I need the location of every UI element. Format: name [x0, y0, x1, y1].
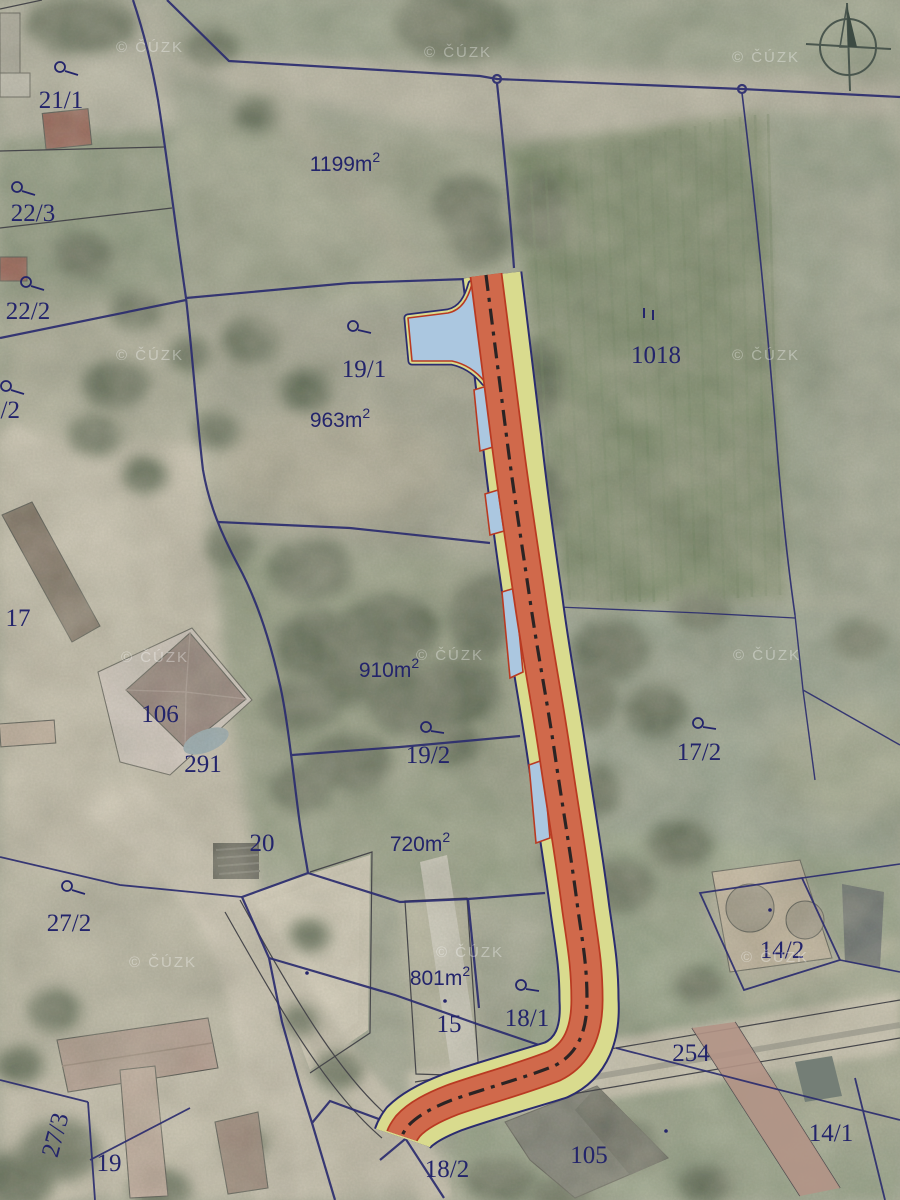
- svg-text:22/2: 22/2: [6, 298, 50, 325]
- svg-text:© ČÚZK: © ČÚZK: [733, 647, 801, 664]
- svg-text:© ČÚZK: © ČÚZK: [424, 44, 492, 61]
- svg-text:910m2: 910m2: [359, 655, 420, 682]
- svg-text:21/1: 21/1: [39, 87, 83, 114]
- svg-text:19/2: 19/2: [406, 742, 450, 769]
- svg-text:© ČÚZK: © ČÚZK: [116, 39, 184, 56]
- svg-text:17/2: 17/2: [677, 739, 721, 766]
- svg-text:15: 15: [437, 1011, 462, 1038]
- svg-text:© ČÚZK: © ČÚZK: [741, 949, 809, 966]
- svg-text:801m2: 801m2: [410, 963, 471, 990]
- svg-text:19/1: 19/1: [342, 356, 386, 383]
- svg-text:106: 106: [141, 701, 179, 728]
- svg-text:© ČÚZK: © ČÚZK: [121, 649, 189, 666]
- svg-text:18/2: 18/2: [425, 1156, 469, 1183]
- svg-text:3/2: 3/2: [0, 397, 20, 424]
- svg-text:254: 254: [672, 1040, 710, 1067]
- svg-text:© ČÚZK: © ČÚZK: [416, 647, 484, 664]
- svg-text:20: 20: [250, 830, 275, 857]
- svg-text:1199m2: 1199m2: [310, 149, 381, 176]
- svg-text:1018: 1018: [631, 342, 681, 369]
- svg-text:© ČÚZK: © ČÚZK: [436, 944, 504, 961]
- svg-text:14/1: 14/1: [809, 1120, 853, 1147]
- svg-text:963m2: 963m2: [310, 405, 371, 432]
- svg-text:720m2: 720m2: [390, 829, 451, 856]
- svg-text:22/3: 22/3: [11, 200, 55, 227]
- svg-text:© ČÚZK: © ČÚZK: [732, 347, 800, 364]
- svg-text:105: 105: [570, 1142, 608, 1169]
- svg-text:27/2: 27/2: [47, 910, 91, 937]
- svg-text:© ČÚZK: © ČÚZK: [129, 954, 197, 971]
- svg-text:18/1: 18/1: [505, 1005, 549, 1032]
- svg-text:17: 17: [6, 605, 31, 632]
- svg-text:© ČÚZK: © ČÚZK: [116, 347, 184, 364]
- svg-text:291: 291: [184, 751, 222, 778]
- svg-text:19: 19: [97, 1150, 122, 1177]
- svg-text:© ČÚZK: © ČÚZK: [732, 49, 800, 66]
